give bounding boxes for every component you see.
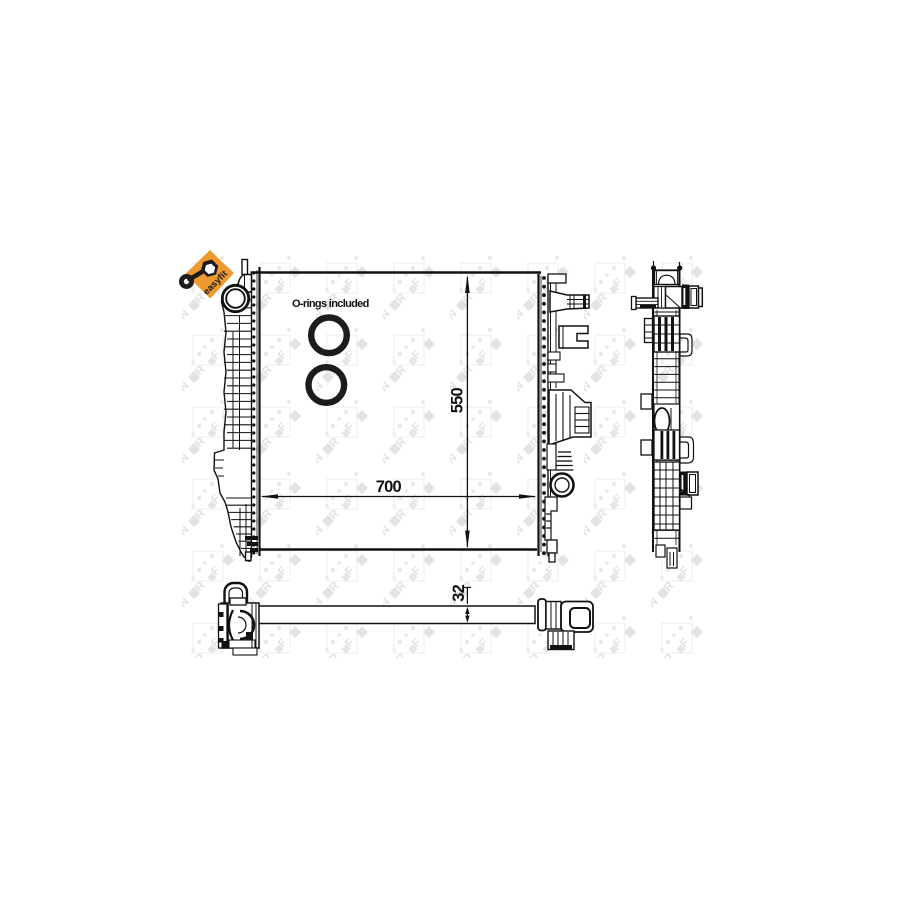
svg-text:550: 550 bbox=[448, 388, 466, 414]
svg-text:700: 700 bbox=[376, 478, 402, 496]
svg-text:32: 32 bbox=[450, 584, 468, 601]
svg-text:O-rings included: O-rings included bbox=[292, 298, 369, 310]
